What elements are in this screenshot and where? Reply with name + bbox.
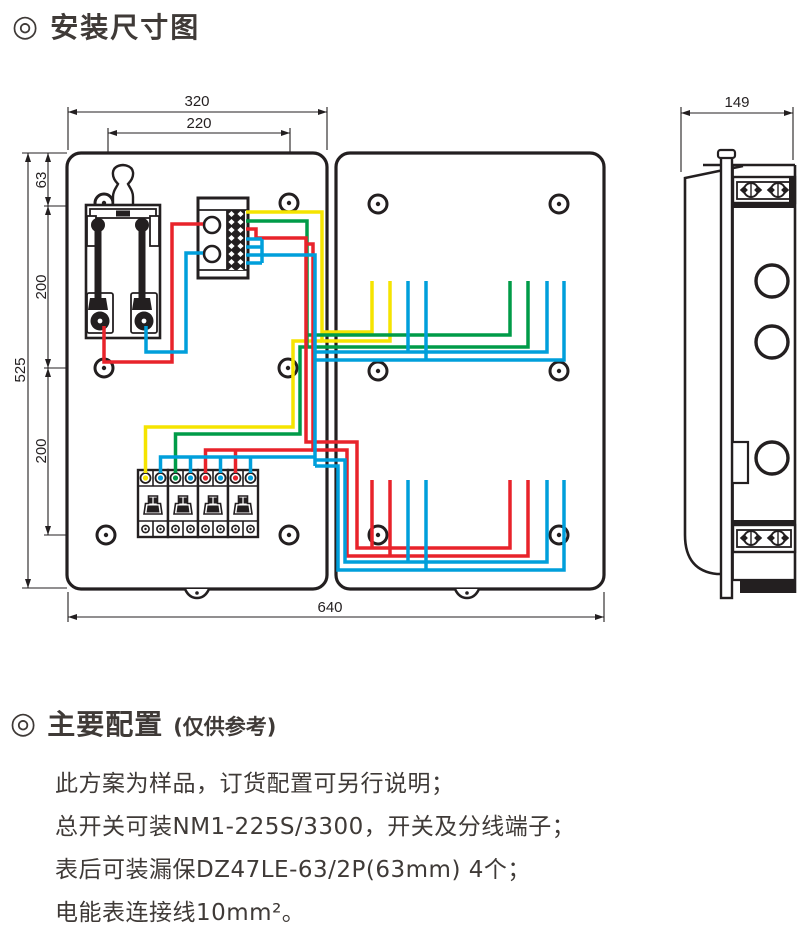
page: { "sections": { "bullet": "◎", "title1":… <box>0 0 800 935</box>
side-knockout-hole <box>756 265 788 297</box>
switch-handle <box>113 165 133 207</box>
breaker-4 <box>228 470 258 537</box>
dim-149: 149 <box>724 94 749 111</box>
config-notes: 此方案为样品，订货配置可另行说明； 总开关可装NM1-225S/3300，开关及… <box>55 763 575 935</box>
section-title-config: ◎ 主要配置 (仅供参考) <box>10 703 276 743</box>
section-title-text: 主要配置 <box>47 703 163 743</box>
breaker-2 <box>168 470 198 537</box>
side-door-profile <box>685 166 743 574</box>
dim-200-lower: 200 <box>33 438 50 463</box>
section-title-suffix: (仅供参考) <box>173 711 276 741</box>
note-line: 总开关可装NM1-225S/3300，开关及分线端子； <box>55 806 575 849</box>
installation-diagram: 320 220 640 149 525 63 200 200 <box>0 0 800 660</box>
side-knockout-hole <box>756 442 788 474</box>
bullseye-icon: ◎ <box>10 706 37 741</box>
dim-200-upper: 200 <box>33 274 50 299</box>
side-view <box>685 150 795 598</box>
terminal-bottom-lug <box>204 246 220 262</box>
note-line: 电能表连接线10mm²。 <box>55 892 575 935</box>
note-line: 此方案为样品，订货配置可另行说明； <box>55 763 575 806</box>
side-door-edge <box>721 152 732 598</box>
side-knockout-hole <box>756 326 788 358</box>
dim-220: 220 <box>186 115 211 132</box>
note-line: 表后可装漏保DZ47LE-63/2P(63mm) 4个； <box>55 849 575 892</box>
breaker-1 <box>138 470 168 537</box>
breaker-3 <box>198 470 228 537</box>
dim-63: 63 <box>33 172 50 189</box>
terminal-top-lug <box>204 217 220 233</box>
dim-320: 320 <box>184 93 209 110</box>
breaker-row <box>138 470 258 537</box>
terminal-strip <box>227 210 245 270</box>
dim-640: 640 <box>317 599 342 616</box>
terminal-block <box>198 198 248 278</box>
dim-525: 525 <box>12 357 29 382</box>
